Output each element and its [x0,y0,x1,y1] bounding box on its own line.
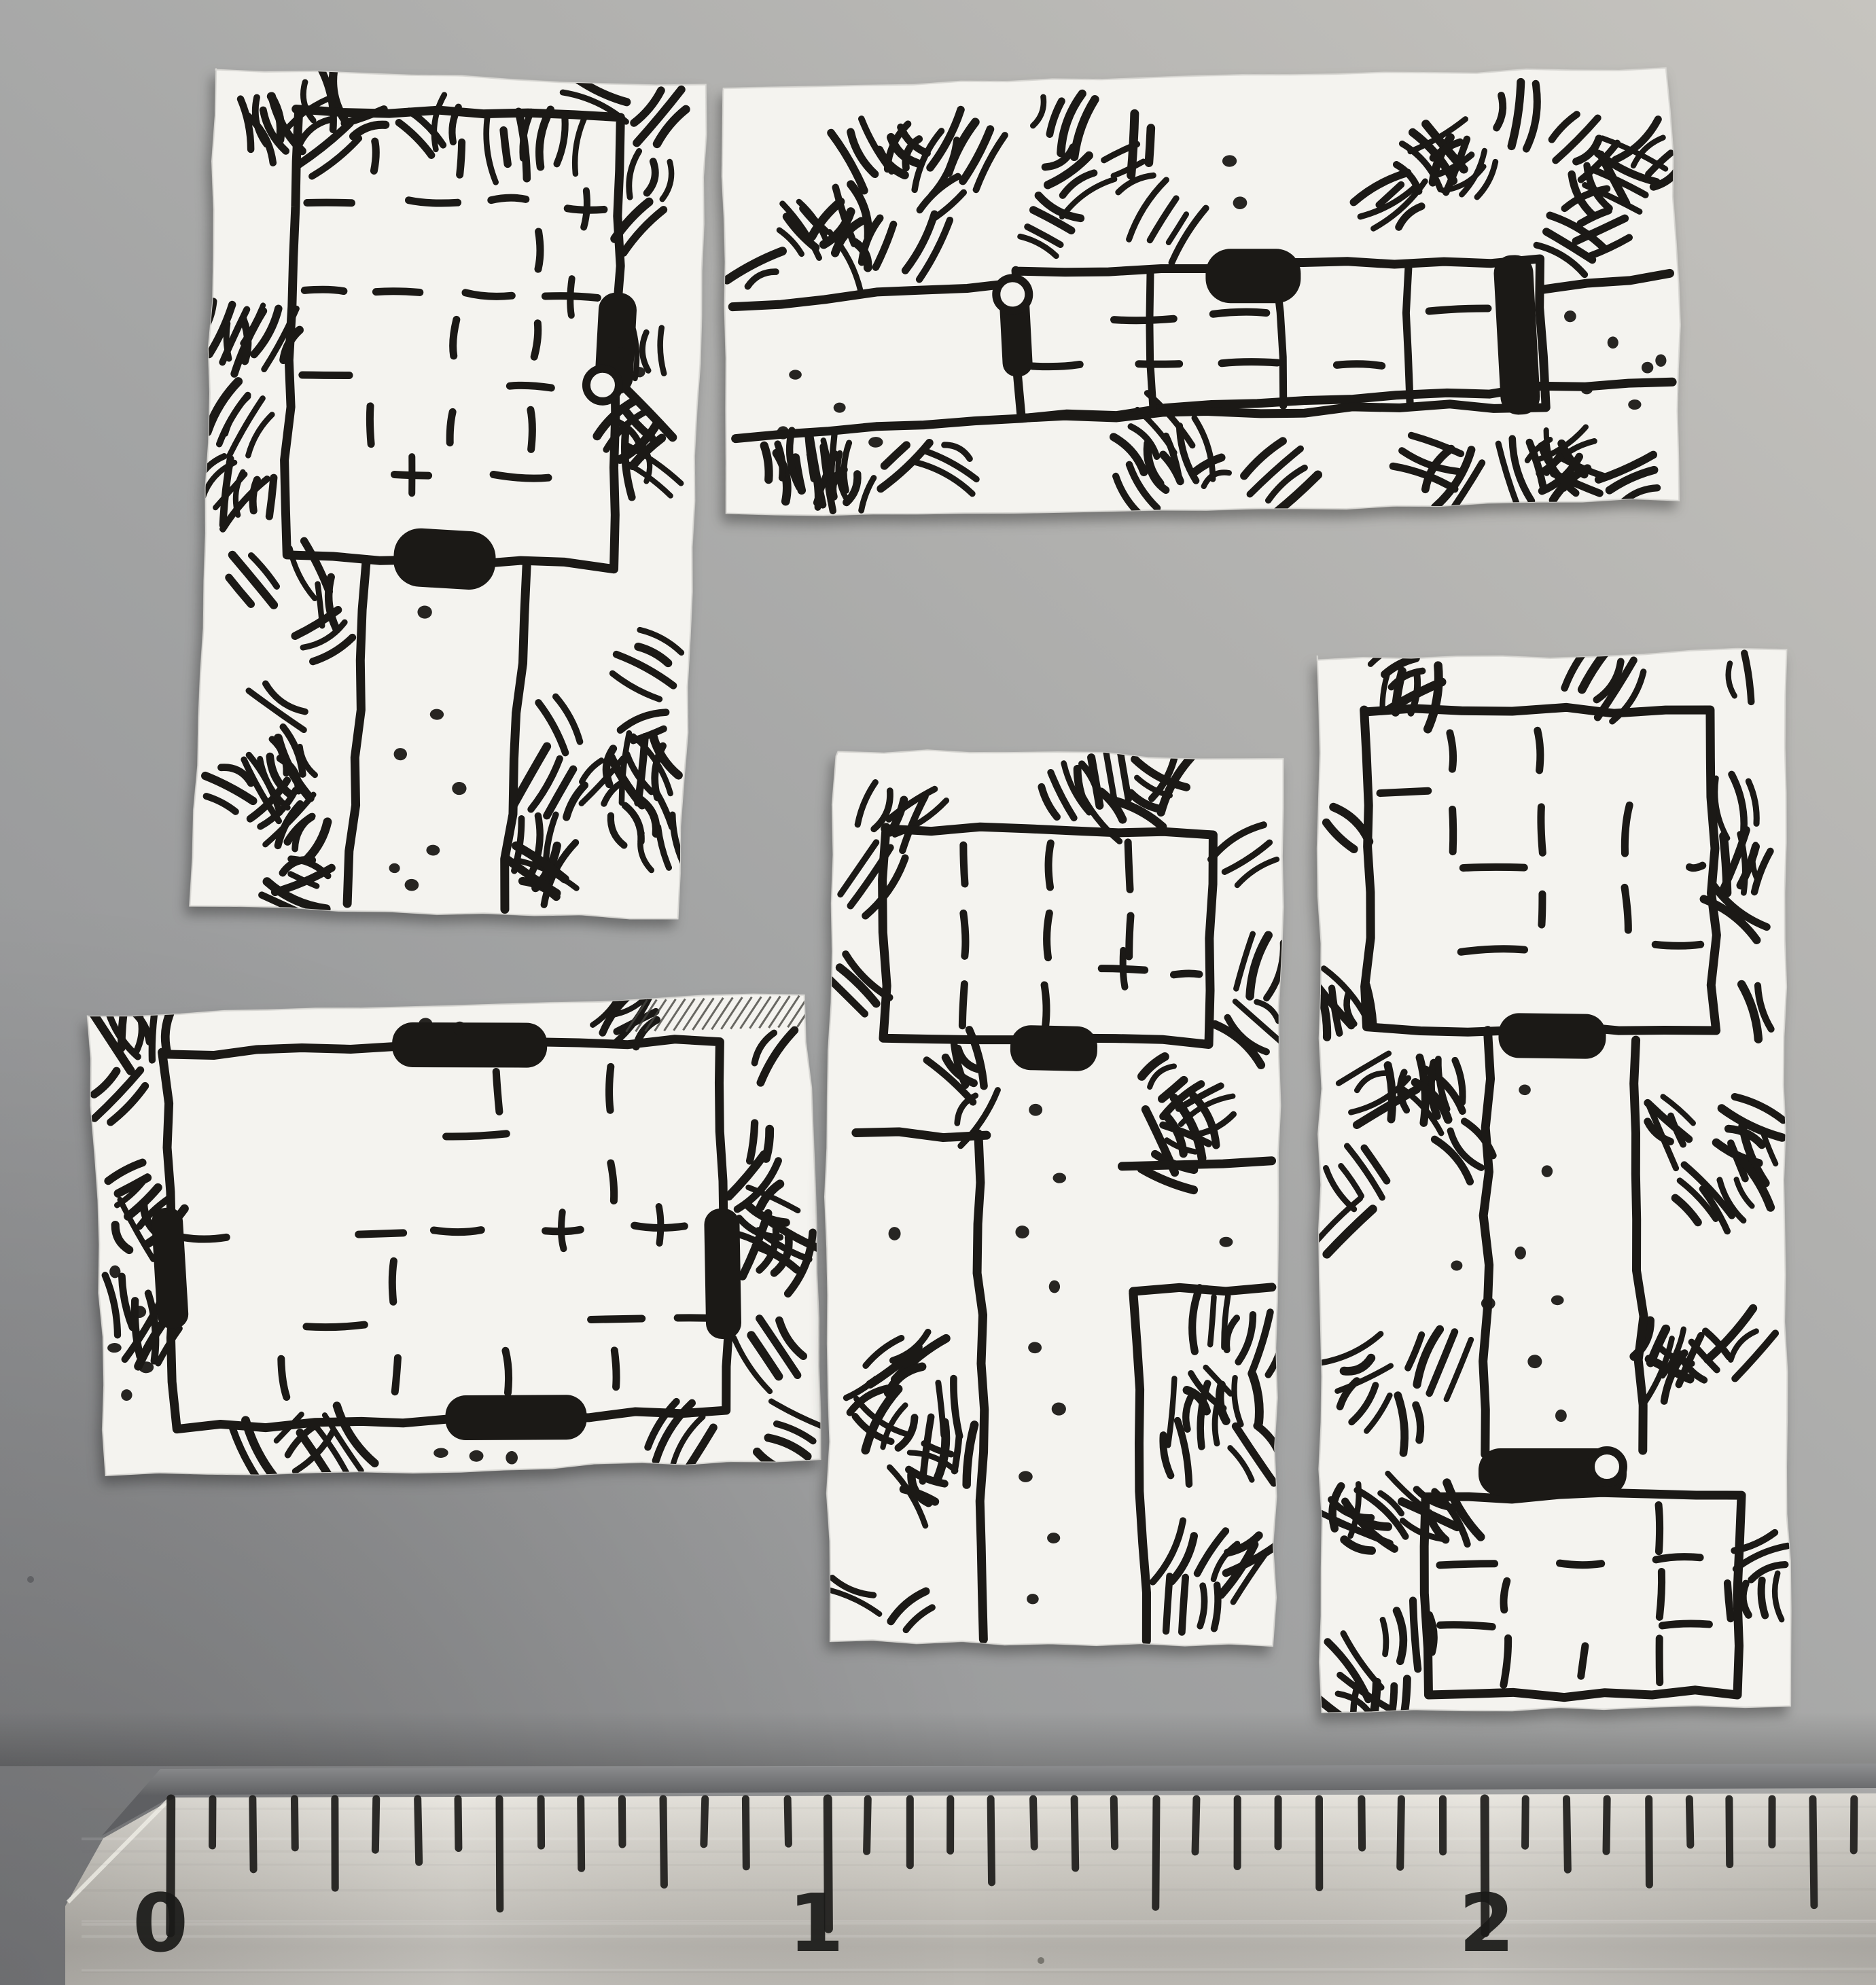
tile-3-room-with-four-doors [87,978,841,1493]
tile-2-room-on-east-west-corridor [716,65,1691,527]
door [445,1395,586,1440]
door [392,1022,547,1068]
desk-speck [27,1576,34,1583]
ruler-face-speck [1038,1957,1044,1964]
door [1498,1013,1606,1059]
door [392,526,497,591]
door [1479,1448,1627,1496]
scene-photo: 012 [0,0,1876,1985]
ruler-number-2: 2 [1459,1876,1515,1970]
door [704,1209,741,1340]
tile-1-room-with-south-corridor [179,62,709,932]
inch-ruler: 012 [0,1712,1876,1985]
ruler-number-1: 1 [788,1876,844,1970]
ruler-number-0: 0 [132,1876,188,1970]
ruler-cast-shadow [0,1712,1876,1766]
door [1010,1025,1097,1072]
tile-5-two-rooms-linked-by-corridor [1311,637,1794,1738]
door [1205,249,1300,303]
photo-of-dungeon-tiles: 012 [0,0,1876,1985]
tile-4-room-with-corridor-junction [814,747,1290,1647]
